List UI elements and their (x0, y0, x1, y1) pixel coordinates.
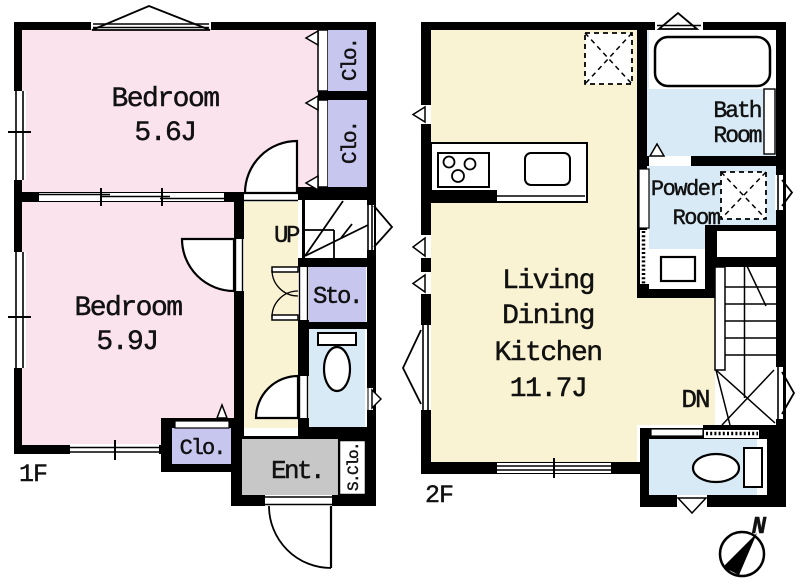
svg-text:Bath: Bath (713, 98, 760, 124)
svg-text:5.9J: 5.9J (96, 327, 157, 358)
svg-text:Powder: Powder (651, 177, 722, 202)
svg-text:S.Clo.: S.Clo. (345, 443, 363, 491)
svg-text:Kitchen: Kitchen (494, 338, 601, 369)
svg-text:DN: DN (681, 385, 709, 415)
svg-text:Clo.: Clo. (340, 122, 363, 164)
svg-text:Living: Living (502, 266, 594, 297)
svg-text:N: N (752, 514, 767, 541)
svg-text:Room: Room (673, 206, 721, 231)
svg-text:Clo.: Clo. (340, 39, 363, 81)
svg-text:Room: Room (713, 123, 761, 149)
svg-text:Bedroom: Bedroom (111, 84, 219, 115)
svg-text:11.7J: 11.7J (510, 374, 587, 405)
svg-text:Dining: Dining (502, 301, 594, 332)
svg-text:5.6J: 5.6J (134, 118, 195, 149)
svg-text:1F: 1F (19, 460, 47, 489)
svg-text:2F: 2F (425, 481, 453, 510)
svg-text:Ent.: Ent. (271, 456, 323, 486)
svg-text:Clo.: Clo. (180, 436, 225, 461)
svg-text:Bedroom: Bedroom (74, 293, 182, 324)
svg-text:Sto.: Sto. (313, 284, 361, 311)
svg-text:UP: UP (274, 223, 300, 250)
